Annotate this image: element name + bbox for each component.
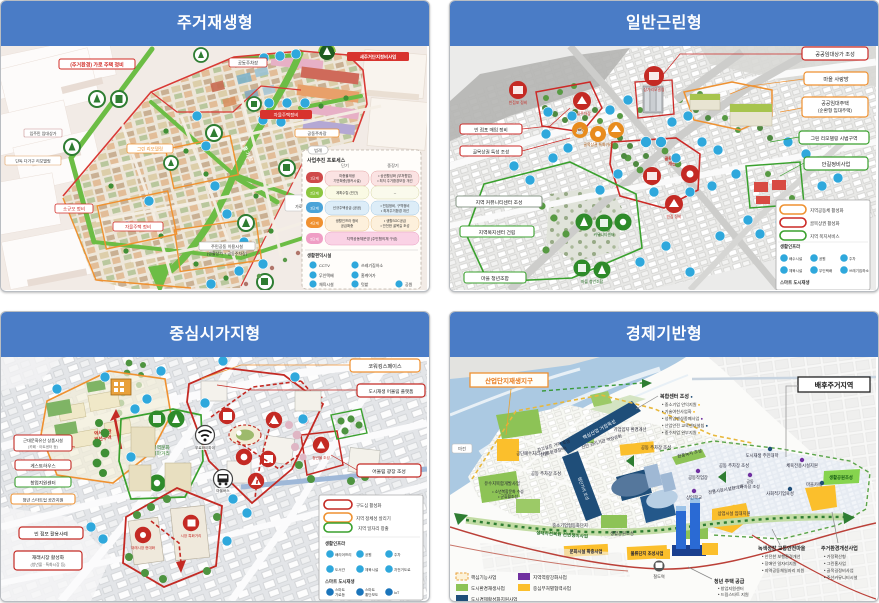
svg-text:마을카페: 마을카페 (806, 481, 822, 488)
svg-text:신규주택공급 (공공): 신규주택공급 (공공) (333, 205, 361, 210)
svg-text:구도심 활성화: 구도심 활성화 (356, 502, 381, 509)
svg-text:빈집 정비: 빈집 정비 (666, 214, 681, 219)
svg-text:상업시설 임대지원: 상업시설 임대지원 (718, 510, 751, 517)
svg-text:주차: 주차 (849, 256, 856, 261)
svg-text:공원: 공원 (365, 552, 372, 557)
svg-text:• 중수지엄 완부지원 ●: • 중수지엄 완부지원 ● (662, 429, 701, 436)
svg-text:청년 스타트업 공간지원: 청년 스타트업 공간지원 (23, 497, 64, 504)
svg-text:지역 복지서비스: 지역 복지서비스 (810, 233, 840, 240)
svg-text:어울림 광장 조성: 어울림 광장 조성 (372, 468, 406, 475)
svg-text:도시재생 주민대학: 도시재생 주민대학 (746, 452, 779, 459)
svg-text:홈케어가: 홈케어가 (361, 272, 376, 278)
svg-text:(주거환경) 가로 주택 정비: (주거환경) 가로 주택 정비 (70, 62, 124, 69)
svg-text:마중물재생: 마중물재생 (339, 173, 355, 178)
svg-text:사업추진 프로세스: 사업추진 프로세스 (307, 157, 346, 164)
svg-text:단독 다가구 리모델링: 단독 다가구 리모델링 (15, 158, 51, 164)
svg-text:공동작업장: 공동작업장 (688, 474, 708, 481)
svg-text:지역복지센터 건립: 지역복지센터 건립 (479, 229, 516, 236)
svg-text:CCTV: CCTV (319, 263, 330, 268)
svg-text:무인택배: 무인택배 (319, 272, 334, 278)
svg-text:유수지복합개발사업: 유수지복합개발사업 (484, 480, 520, 487)
svg-text:배수시설: 배수시설 (789, 256, 802, 261)
svg-text:공동 주차장 조성: 공동 주차장 조성 (719, 462, 749, 469)
svg-text:공공임대상가 조성: 공공임대상가 조성 (815, 50, 855, 58)
svg-text:커뮤니티센터: 커뮤니티센터 (594, 232, 615, 237)
svg-text:지역공동체 활성화: 지역공동체 활성화 (810, 207, 844, 214)
svg-text:지역 일자리 창출: 지역 일자리 창출 (358, 525, 389, 532)
svg-text:공동 주차장 조성: 공동 주차장 조성 (531, 470, 561, 477)
svg-text:무료와이파이: 무료와이파이 (195, 445, 215, 450)
svg-text:상가리모델링: 상가리모델링 (644, 87, 665, 92)
svg-text:• 중소기업 안익지원 ●: • 중소기업 안익지원 ● (662, 401, 701, 408)
svg-text:소규모 정비: 소규모 정비 (63, 206, 85, 213)
svg-text:배후주거지역: 배후주거지역 (815, 381, 854, 390)
svg-text:도시재생 어울림 플랫폼: 도시재생 어울림 플랫폼 (369, 388, 414, 395)
svg-text:생활편익시설: 생활편익시설 (307, 252, 331, 259)
svg-text:골목상권 활성화: 골목상권 활성화 (810, 220, 840, 227)
svg-text:• 소년복합문화 수성: • 소년복합문화 수성 (492, 489, 524, 494)
svg-text:청년몰 조성: 청년몰 조성 (312, 455, 330, 460)
svg-text:• 생활SOC공급: • 생활SOC공급 (384, 218, 406, 223)
svg-text:• 골목길정비사업: • 골목길정비사업 (824, 567, 854, 574)
svg-text:쓰레기집하소: 쓰레기집하소 (361, 262, 383, 268)
svg-text:• 빈집정비, 구역정비: • 빈집정비, 구역정비 (381, 203, 410, 208)
svg-text:재래시장 활성화: 재래시장 활성화 (32, 554, 65, 561)
svg-text:생활공원조성: 생활공원조성 (610, 530, 634, 537)
svg-text:중장기: 중장기 (387, 162, 399, 169)
svg-text:문화시설 확충사업: 문화시설 확충사업 (570, 548, 603, 555)
svg-text:• 상권활성화 (부처협업): • 상권활성화 (부처협업) (378, 173, 411, 178)
svg-text:공공임대주택: 공공임대주택 (821, 100, 849, 107)
svg-text:자율주택정비: 자율주택정비 (274, 112, 299, 119)
svg-text:• 창업지원센터: • 창업지원센터 (718, 585, 744, 592)
svg-text:빈점포 정비: 빈점포 정비 (509, 100, 528, 105)
svg-text:녹색성장 교통안전마을: 녹색성장 교통안전마을 (758, 545, 806, 552)
svg-text:(청년몰 · 특화시장 등): (청년몰 · 특화시장 등) (31, 562, 67, 567)
svg-text:• 안전한 보행환경개선: • 안전한 보행환경개선 (762, 553, 801, 560)
svg-text:☕: ☕ (576, 126, 585, 135)
svg-text:생활공원조성: 생활공원조성 (829, 474, 853, 481)
svg-text:지역 정체성 살리기: 지역 정체성 살리기 (356, 515, 391, 522)
svg-text:공원: 공원 (819, 256, 826, 261)
svg-text:중소기업협동화단지: 중소기업협동화단지 (552, 522, 588, 529)
svg-text:물류단지 조성사업: 물류단지 조성사업 (631, 550, 664, 557)
svg-text:• 최저주거환경 개선: • 최저주거환경 개선 (381, 208, 409, 213)
svg-text:마전: 마전 (458, 446, 466, 453)
svg-text:• 드림스타트 지원: • 드림스타트 지원 (718, 591, 749, 598)
svg-text:주차: 주차 (394, 552, 401, 557)
svg-text:지역공동체운영 (주민협의체 구성): 지역공동체운영 (주민협의체 구성) (347, 236, 398, 241)
svg-text:도서관: 도서관 (335, 567, 346, 572)
svg-text:마을 청년조합: 마을 청년조합 (481, 275, 509, 282)
svg-text:산업단지재생지구: 산업단지재생지구 (485, 376, 533, 385)
svg-text:공급확충: 공급확충 (341, 223, 353, 228)
svg-text:생활인프라: 생활인프라 (325, 540, 346, 547)
svg-text:텃밭: 텃밭 (361, 281, 369, 287)
svg-text:도시경제활성화지원사업: 도시경제활성화지원사업 (471, 596, 518, 601)
svg-text:• 성취업멘샵종폐사업 ●: • 성취업멘샵종폐사업 ● (662, 415, 703, 422)
svg-text:2단계: 2단계 (310, 191, 319, 196)
svg-text:단기: 단기 (341, 162, 349, 169)
svg-text:중심부처별협력사업: 중심부처별협력사업 (533, 585, 571, 592)
svg-text:스마트 도시재생: 스마트 도시재생 (325, 578, 355, 585)
svg-text:• 산업안전 교육센터설칩 ●: • 산업안전 교육센터설칩 ● (662, 422, 708, 429)
svg-text:• 장애인 일자리지원: • 장애인 일자리지원 (762, 560, 797, 567)
svg-text:(카페 · 아트센터 등): (카페 · 아트센터 등) (28, 444, 58, 449)
svg-text:계획수립 (민간): 계획수립 (민간) (336, 190, 358, 195)
svg-text:스마트 도시재생: 스마트 도시재생 (780, 279, 810, 286)
svg-text:코워킹스페이스: 코워킹스페이스 (368, 362, 402, 370)
svg-text:상인학교: 상인학교 (686, 494, 702, 501)
svg-text:• 안전한 골목길 조성: • 안전한 골목길 조성 (381, 223, 410, 228)
svg-text:안길정비사업: 안길정비사업 (822, 160, 851, 168)
svg-text:1단계: 1단계 (310, 176, 319, 181)
svg-text:생활인프라: 생활인프라 (780, 243, 801, 250)
svg-text:쓰레기집하소: 쓰레기집하소 (849, 268, 870, 273)
svg-text:배리어프리: 배리어프리 (335, 552, 352, 557)
svg-text:핵심기능사업: 핵심기능사업 (471, 574, 496, 581)
svg-text:그린 리모델링: 그린 리모델링 (137, 146, 163, 153)
svg-text:주민공동 이용시설: 주민공동 이용시설 (211, 243, 243, 250)
svg-text:마을버스: 마을버스 (216, 488, 230, 493)
svg-text:창업지원센터: 창업지원센터 (30, 480, 55, 487)
svg-text:그린 리모델링 시범구역: 그린 리모델링 시범구역 (811, 135, 858, 142)
svg-text:• 최저 주거환경보장 개선: • 최저 주거환경보장 개선 (377, 178, 412, 183)
svg-text:3단계: 3단계 (310, 206, 319, 211)
svg-text:5단계: 5단계 (310, 237, 319, 242)
svg-text:무인택배: 무인택배 (819, 268, 832, 273)
svg-text:근대문화유산 상품시설: 근대문화유산 상품시설 (23, 437, 63, 444)
svg-text:지역 커뮤니티센터 조성: 지역 커뮤니티센터 조성 (476, 199, 523, 206)
svg-text:새주거단지정비사업: 새주거단지정비사업 (360, 54, 396, 61)
svg-text:마을 청년조합: 마을 청년조합 (581, 279, 604, 284)
svg-text:IoT: IoT (394, 591, 400, 595)
svg-text:(순환형 임대주택): (순환형 임대주택) (818, 107, 852, 114)
svg-text:공원: 공원 (405, 281, 413, 287)
svg-text:빈 점포 활용사례: 빈 점포 활용사례 (34, 531, 68, 538)
svg-text:게스트하우스: 게스트하우스 (30, 463, 55, 470)
svg-text:• 가정확산형: • 가정확산형 (824, 553, 846, 560)
svg-text:기업입지 환경개선: 기업입지 환경개선 (614, 426, 647, 433)
svg-text:지역역량강화사업: 지역역량강화사업 (533, 574, 567, 581)
svg-text:공동주차장: 공동주차장 (307, 130, 326, 137)
svg-text:• 그린홈사업: • 그린홈사업 (824, 560, 846, 567)
svg-text:4단계: 4단계 (310, 221, 319, 226)
svg-text:• 기술여친사업화 ●: • 기술여친사업화 ● (662, 408, 696, 415)
svg-text:자전거도로: 자전거도로 (394, 567, 411, 572)
svg-text:빈 점포 매입 정비: 빈 점포 매입 정비 (474, 127, 507, 134)
svg-text:가로등: 가로등 (335, 592, 346, 597)
svg-text:생활인프라 정비: 생활인프라 정비 (336, 218, 359, 223)
svg-text:복합센터 조성 ●: 복합센터 조성 ● (660, 393, 693, 400)
svg-text:공동 주차장 조성: 공동 주차장 조성 (641, 444, 671, 451)
svg-text:철도역: 철도역 (653, 573, 665, 580)
svg-text:기반확충(앵커시설): 기반확충(앵커시설) (333, 178, 360, 183)
svg-text:체육시설: 체육시설 (789, 268, 802, 273)
svg-text:• 주선커뮤니티시설: • 주선커뮤니티시설 (824, 574, 858, 581)
svg-text:도시환경재생사업: 도시환경재생사업 (471, 585, 505, 592)
svg-text:골목상권 특성 조성: 골목상권 특성 조성 (473, 149, 509, 156)
svg-text:골목상권 특화거리: 골목상권 특화거리 (584, 142, 613, 147)
svg-text:체육전용시설지원: 체육전용시설지원 (786, 462, 818, 469)
svg-text:(생활상가 + 공동주차장): (생활상가 + 공동주차장) (207, 250, 248, 256)
svg-text:스마트: 스마트 (335, 587, 346, 592)
svg-text:주차장 조성: 주차장 조성 (740, 483, 760, 489)
svg-text:마을 사랑방: 마을 사랑방 (823, 75, 849, 83)
svg-text:스마트: 스마트 (365, 587, 376, 592)
svg-text:재래시장 현대화: 재래시장 현대화 (131, 545, 156, 550)
svg-text:입주민 임대상가: 입주민 임대상가 (30, 130, 57, 136)
svg-text:자율주택 정비: 자율주택 정비 (125, 224, 151, 231)
svg-text:체육시설: 체육시설 (365, 567, 378, 572)
svg-text:청년 주택 공급: 청년 주택 공급 (714, 578, 745, 585)
svg-text:• 군휴월조성: • 군휴월조성 (498, 494, 518, 499)
svg-text:횡단보도: 횡단보도 (365, 592, 379, 597)
svg-text:• 지역공동체일자리 지원: • 지역공동체일자리 지원 (762, 567, 804, 574)
svg-text:체육시설: 체육시설 (319, 281, 334, 287)
svg-text:주거환경개선사업: 주거환경개선사업 (821, 545, 858, 552)
svg-text:시장 특화거리: 시장 특화거리 (181, 533, 202, 538)
svg-text:범례: 범례 (314, 147, 322, 154)
svg-text:공동주차장: 공동주차장 (238, 60, 258, 67)
